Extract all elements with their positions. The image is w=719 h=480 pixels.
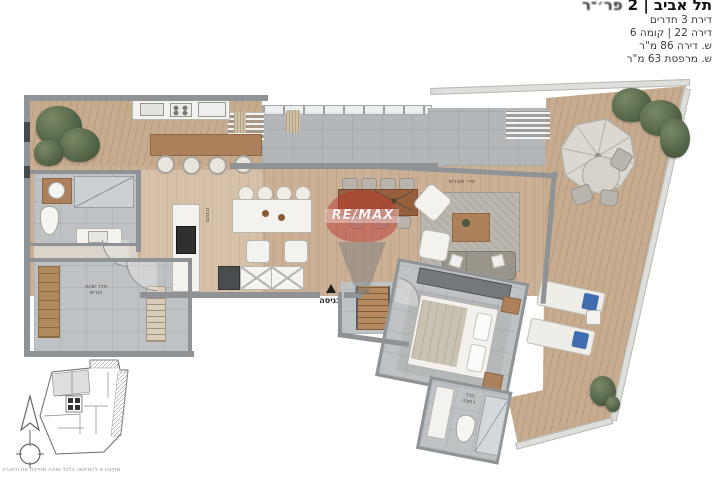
- curtain-icon: [234, 112, 246, 133]
- sink-icon: [48, 182, 65, 199]
- bar-stool-icon: [156, 155, 175, 174]
- blanket: [411, 299, 468, 367]
- wall: [24, 95, 268, 101]
- detail-apartment-floor: דירה 22 | קומה 6: [582, 27, 712, 40]
- remax-watermark: RE/MAX: [325, 188, 401, 298]
- wall: [338, 292, 342, 336]
- fridge-icon: [218, 266, 240, 290]
- shower-icon: [74, 176, 134, 208]
- pillow-icon: [466, 344, 487, 374]
- detail-balcony-area: ש. מרפסת 63 מ"ר: [582, 53, 712, 66]
- bathroom-small: חדר רחצה: [416, 376, 513, 465]
- plant-icon: [606, 396, 620, 412]
- wall: [30, 170, 140, 174]
- listing-title: פר׳־ר 2 | תל אביב: [582, 0, 712, 14]
- toilet-icon: [453, 413, 477, 444]
- master-bedroom-label: חדר שינה הורים: [66, 284, 126, 296]
- city-name: תל אביב: [654, 0, 712, 14]
- bathroom-label: חדר רחצה: [452, 390, 486, 408]
- towel-icon: [571, 331, 589, 350]
- street-number: 2 |: [628, 0, 649, 14]
- table-plant-icon: [462, 219, 470, 227]
- breakfast-bar: [150, 134, 262, 156]
- coffee-table: [452, 213, 490, 242]
- plant-icon: [34, 140, 64, 166]
- pergola-terrace-icon: [505, 110, 551, 140]
- bar-stool-icon: [208, 156, 227, 175]
- wall: [30, 258, 192, 262]
- bar-stool-icon: [182, 156, 201, 175]
- listing-header: פר׳־ר 2 | תל אביב דירת 3 חדרים דירה 22 |…: [582, 0, 712, 66]
- plant-icon: [60, 128, 100, 162]
- vanity: [426, 385, 455, 440]
- curtain-icon: [286, 110, 300, 133]
- wall: [30, 243, 140, 246]
- wall: [24, 351, 194, 357]
- wall: [136, 170, 141, 252]
- balloon-bottom-icon: [337, 242, 387, 286]
- lounge-chair-icon: [284, 240, 308, 263]
- bed: [407, 294, 499, 380]
- lounge-chair-icon: [246, 240, 270, 263]
- bowl-icon: [262, 210, 269, 217]
- armchair-icon: [418, 229, 452, 263]
- terrace-chair-icon: [599, 189, 619, 207]
- street-name: פר׳־ר: [582, 0, 623, 14]
- floor-plan-page: פר׳־ר 2 | תל אביב דירת 3 חדרים דירה 22 |…: [0, 0, 719, 480]
- nightstand-icon: [501, 296, 522, 315]
- pillow-icon: [472, 312, 493, 342]
- wall: [24, 122, 30, 142]
- stove-icon: [170, 103, 192, 117]
- wall: [140, 292, 320, 298]
- plant-icon: [660, 118, 690, 158]
- kitchen-island: [232, 199, 312, 233]
- kitchen-label: מטבח: [204, 208, 210, 222]
- master-bedroom-label-line2: הורים: [66, 290, 126, 296]
- detail-rooms: דירת 3 חדרים: [582, 14, 712, 27]
- detail-apartment-area: ש. דירה 86 מ"ר: [582, 40, 712, 53]
- closet-icon: [38, 266, 60, 338]
- wall: [188, 258, 192, 356]
- living-room-label: חדר מגורים: [430, 179, 494, 185]
- sink-icon: [140, 103, 164, 116]
- bowl-icon: [278, 214, 285, 221]
- side-table-icon: [586, 310, 601, 325]
- base-cabinet-icon: [271, 266, 302, 288]
- sink-icon: [198, 102, 226, 117]
- base-cabinet-icon: [240, 266, 271, 288]
- disclaimer-text: סקיצה זו להמחשה בלבד ואינה מחייבת את החב…: [2, 467, 152, 473]
- oven-icon: [176, 226, 196, 254]
- towel-icon: [581, 293, 599, 312]
- balloon-basket-icon: [355, 287, 369, 294]
- north-arrow-icon: [6, 392, 54, 476]
- watermark-text: RE/MAX: [322, 208, 404, 223]
